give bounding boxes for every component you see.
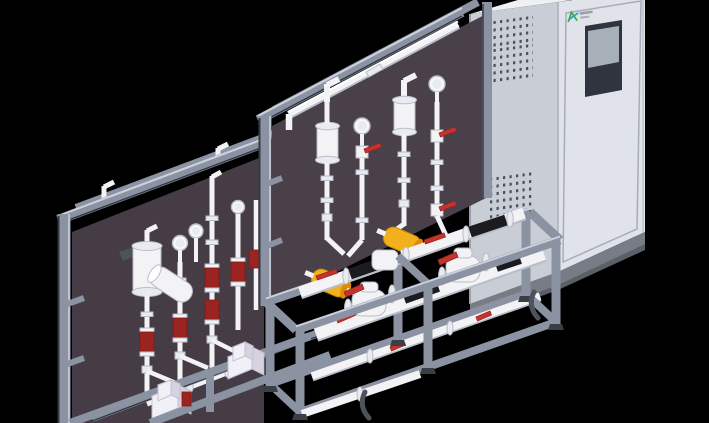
- pipe-tee: [399, 200, 409, 207]
- hmi-screen-display: [588, 26, 619, 68]
- foot: [548, 324, 564, 330]
- foot: [292, 414, 308, 420]
- pipe-flange: [431, 186, 443, 191]
- flange: [507, 211, 513, 227]
- flange: [343, 268, 349, 284]
- flange: [463, 226, 469, 242]
- pipe-flange: [321, 176, 333, 181]
- red-valve-body: [140, 332, 154, 352]
- inline-valve: [372, 250, 398, 270]
- red-valve-body: [182, 392, 191, 406]
- foot: [390, 340, 406, 346]
- cad-scene: [0, 0, 709, 423]
- foot: [420, 368, 436, 374]
- pipe-flange: [398, 152, 410, 157]
- pipe-flange: [206, 216, 218, 221]
- pipe-flange: [431, 160, 443, 165]
- vent-grid: [487, 44, 533, 84]
- pipe-flange: [206, 240, 218, 245]
- red-valve-body: [205, 268, 219, 288]
- pipe-flange: [398, 178, 410, 183]
- foot: [262, 386, 278, 392]
- red-valve-body: [205, 300, 219, 320]
- damper-flange: [132, 288, 162, 297]
- pipe-flange: [356, 218, 368, 223]
- pipe-flange: [141, 312, 153, 317]
- pipe-flange: [321, 198, 333, 203]
- pipe-flange: [356, 170, 368, 175]
- red-valve-body: [231, 262, 245, 282]
- pipe-tee: [322, 214, 332, 221]
- red-valve-body: [173, 318, 187, 338]
- cad-render-viewport: [0, 0, 709, 423]
- damper-flange: [132, 242, 162, 251]
